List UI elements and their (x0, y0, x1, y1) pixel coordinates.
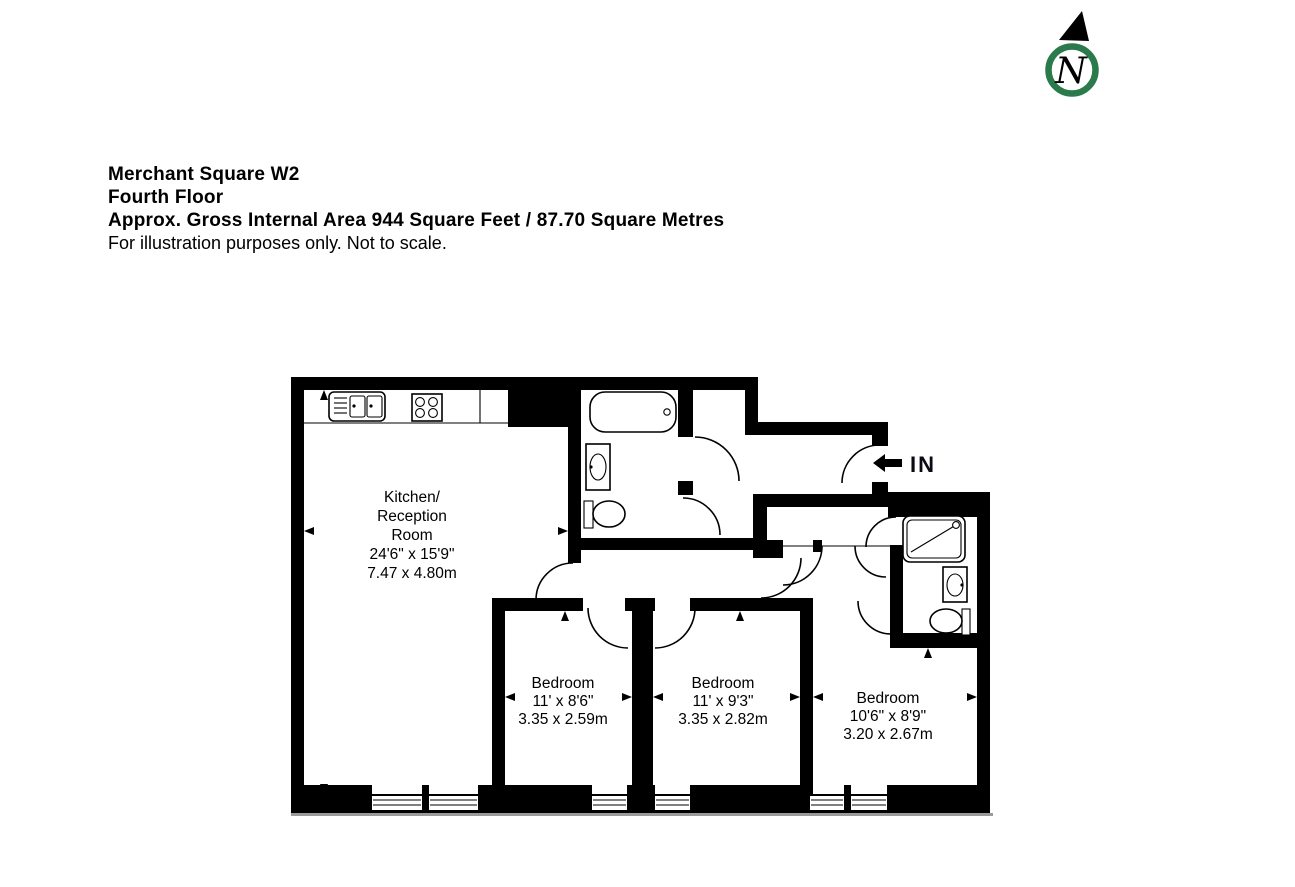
entrance-indicator: IN (873, 452, 936, 477)
kitchen-window-2 (429, 796, 478, 810)
bathroom-toilet (584, 501, 625, 528)
bathtub (590, 392, 676, 432)
kitchen-name-line1: Kitchen/ (384, 489, 441, 506)
kitchen-name-line2: Reception (377, 508, 447, 525)
kitchen-name-line3: Room (391, 527, 432, 544)
bedroom2-door-arc (655, 608, 695, 648)
bathroom-door-arc (695, 437, 739, 481)
kitchen-window-1 (372, 796, 422, 810)
bedroom3-door-arc (858, 601, 891, 634)
bedroom1-dims-metric: 3.35 x 2.59m (518, 711, 608, 728)
tick (790, 693, 800, 701)
sill-block (304, 785, 372, 794)
bedroom1-label: Bedroom 11' x 8'6" 3.35 x 2.59m (518, 675, 608, 728)
north-indicator: N (1049, 11, 1096, 94)
entrance-arrow-icon (873, 454, 902, 472)
wall-bathroom-bottom (568, 538, 765, 550)
tick (736, 611, 744, 621)
wall-bedroom1-left (492, 598, 505, 795)
bedroom1-door-arc (588, 608, 628, 648)
sill-block (627, 785, 655, 794)
tick (813, 693, 823, 701)
bedroom2-name: Bedroom (692, 675, 755, 692)
wall-entrance-jamb-bottom (872, 482, 888, 495)
entrance-label: IN (910, 452, 936, 477)
tick (558, 527, 568, 535)
tick (653, 693, 663, 701)
wall-bathroom-right-stub (678, 481, 693, 495)
shower-tray (903, 516, 965, 562)
wall-bedrooms-top-left (492, 598, 583, 611)
floor-plan-drawing: Kitchen/ Reception Room 24'6" x 15'9" 7.… (0, 0, 1295, 887)
walls (291, 377, 993, 816)
bedroom3-name: Bedroom (857, 690, 920, 707)
innerhall-door-arc (761, 558, 801, 598)
bedroom1-window (592, 796, 627, 810)
north-arrow-icon (1059, 11, 1089, 41)
bedroom1-dims-imperial: 11' x 8'6" (532, 693, 593, 710)
wall-outer-right (977, 492, 990, 813)
wall-showerroom-bottom (890, 633, 990, 648)
tick (505, 693, 515, 701)
tick (924, 648, 932, 658)
closet-door-right-arc (855, 546, 886, 577)
bedroom2-label: Bedroom 11' x 9'3" 3.35 x 2.82m (678, 675, 768, 728)
sill-block (478, 785, 592, 794)
tick (561, 611, 569, 621)
bedroom1-name: Bedroom (532, 675, 595, 692)
tick (304, 527, 314, 535)
tick (967, 693, 977, 701)
sill-block (844, 785, 851, 794)
bedroom3-label: Bedroom 10'6" x 8'9" 3.20 x 2.67m (843, 690, 933, 743)
hob (412, 394, 442, 421)
bedroom3-dims-imperial: 10'6" x 8'9" (850, 708, 926, 725)
kitchen-label: Kitchen/ Reception Room 24'6" x 15'9" 7.… (367, 489, 457, 582)
wall-bathroom-right-upper (678, 390, 693, 437)
entrance-door-arc (842, 445, 880, 483)
sill-block (887, 785, 977, 794)
sill-block (422, 785, 429, 794)
showerroom-sink (943, 567, 967, 602)
kitchen-sink (329, 392, 385, 421)
wall-kitchen-bathroom (568, 390, 581, 563)
bathroom-sink (586, 444, 610, 490)
showerroom-toilet (930, 609, 970, 635)
wall-bedroom1-bedroom2 (632, 611, 653, 795)
kitchen-dims-metric: 7.47 x 4.80m (367, 565, 457, 582)
wall-closet-jamb-left (767, 540, 783, 558)
bedroom3-window-1 (810, 796, 844, 810)
showerroom-door-arc (866, 517, 896, 547)
tick (320, 390, 328, 400)
kitchen-door-arc (536, 563, 573, 600)
wall-showerroom-top (888, 492, 990, 517)
hall-door-arc (683, 498, 720, 535)
wall-bedrooms-top-mid (625, 598, 655, 611)
wall-bedrooms-top-right (690, 598, 805, 611)
wall-outer-left (291, 377, 304, 813)
wall-bedroom2-bedroom3 (800, 598, 813, 795)
wall-upper-right (745, 422, 888, 435)
sill-block (690, 785, 810, 794)
kitchen-dims-imperial: 24'6" x 15'9" (369, 546, 454, 563)
floorplan-page: Merchant Square W2 Fourth Floor Approx. … (0, 0, 1295, 887)
bedroom2-window (655, 796, 690, 810)
bedroom2-dims-metric: 3.35 x 2.82m (678, 711, 768, 728)
bedroom3-dims-metric: 3.20 x 2.67m (843, 726, 933, 743)
north-letter: N (1054, 51, 1088, 92)
bedroom2-dims-imperial: 11' x 9'3" (692, 693, 753, 710)
bottom-shadow-line (291, 813, 993, 816)
tick (622, 693, 632, 701)
bedroom3-window-2 (851, 796, 887, 810)
wall-innerhall-top (753, 494, 890, 507)
wall-kitchen-unit-block (508, 390, 568, 427)
wall-outer-top (291, 377, 758, 390)
wall-showerroom-left (890, 545, 903, 648)
